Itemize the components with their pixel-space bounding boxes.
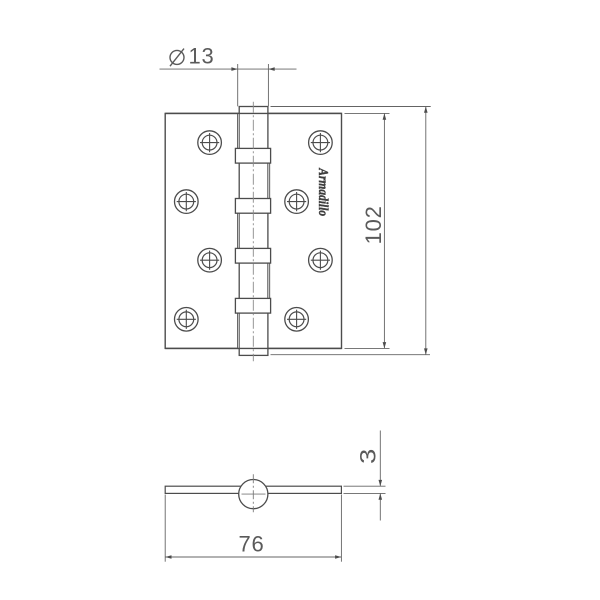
svg-text:102: 102: [361, 205, 386, 244]
svg-text:3: 3: [356, 448, 381, 464]
svg-text:Armadillo: Armadillo: [316, 167, 331, 216]
svg-text:13: 13: [189, 43, 215, 68]
svg-text:76: 76: [238, 532, 264, 557]
